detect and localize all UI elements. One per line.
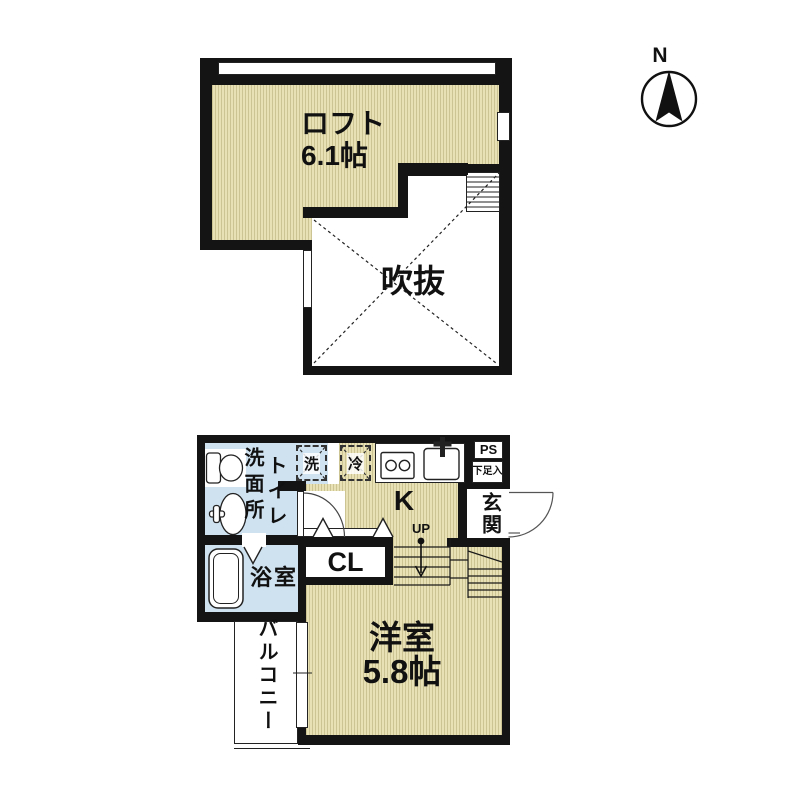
loft-label: ロフト <box>301 109 385 138</box>
washer-nook-divider <box>328 443 339 484</box>
void-area-notch <box>408 176 466 218</box>
room-balcony-window <box>296 622 308 728</box>
room-size-label: 5.8帖 <box>337 655 467 690</box>
entrance-label: 玄関 <box>479 492 500 536</box>
toilet-label: トイレ <box>264 455 285 530</box>
void-label: 吹抜 <box>363 265 463 299</box>
washroom-label: 洗面所 <box>241 447 262 525</box>
washer-space-box: 洗 <box>296 445 327 481</box>
entrance-door-icon <box>509 493 554 538</box>
fridge-space-box: 冷 <box>340 445 371 481</box>
loft-right-window <box>497 112 510 141</box>
loft-size-label: 6.1帖 <box>301 141 368 170</box>
entrance-bottom-wall <box>447 538 508 547</box>
void-left-window <box>303 250 312 308</box>
room-label: 洋室 <box>337 621 467 656</box>
floor-plan-canvas: ロフト 6.1帖 吹抜 PS 下足入 玄関 CL 洗 冷 トイレ 洗面所 K U… <box>0 0 800 800</box>
compass-icon <box>642 71 696 127</box>
bathroom-doorway <box>242 533 266 547</box>
kitchen-label: K <box>384 486 424 515</box>
ps-label: PS <box>480 443 497 457</box>
toilet-nook <box>205 449 246 487</box>
closet-box: CL <box>306 547 385 577</box>
bathroom-label: 浴室 <box>244 566 304 589</box>
void-area-under-stairs <box>466 212 499 218</box>
closet-label: CL <box>328 548 364 576</box>
balcony-label: バルコニー <box>255 618 276 748</box>
kitchen-counter <box>375 443 465 483</box>
entrance-area: 玄関 <box>467 489 511 538</box>
loft-inner-wall-horizontal <box>398 163 468 175</box>
shoe-cabinet-box: 下足入 <box>472 461 503 483</box>
loft-top-window <box>218 62 496 75</box>
up-label: UP <box>404 522 438 536</box>
fridge-label: 冷 <box>347 453 364 474</box>
washer-label: 洗 <box>303 453 320 474</box>
compass-north-label: N <box>643 45 677 67</box>
balcony-outer-line <box>234 748 310 749</box>
closet-door-track <box>300 528 387 537</box>
void-top-wall <box>303 207 408 218</box>
ps-box: PS <box>474 441 503 459</box>
loft-stairs-box <box>466 172 500 212</box>
shoe-cabinet-label: 下足入 <box>473 467 503 478</box>
